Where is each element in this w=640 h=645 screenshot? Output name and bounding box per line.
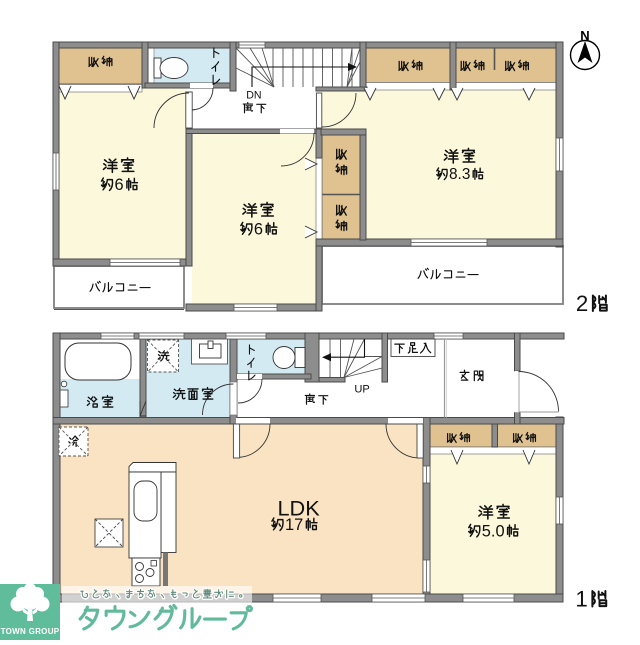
svg-text:N: N xyxy=(580,28,589,43)
svg-text:1: 1 xyxy=(575,587,587,612)
svg-text:17: 17 xyxy=(285,516,303,534)
svg-text:6: 6 xyxy=(115,176,124,194)
svg-text:6: 6 xyxy=(254,221,263,239)
svg-text:UP: UP xyxy=(354,383,369,395)
svg-text:5.0: 5.0 xyxy=(482,523,505,541)
svg-text:DN: DN xyxy=(246,90,261,102)
svg-text:8.3: 8.3 xyxy=(449,166,470,183)
svg-text:2: 2 xyxy=(576,291,588,316)
svg-text:TOWN GROUP: TOWN GROUP xyxy=(1,627,60,636)
